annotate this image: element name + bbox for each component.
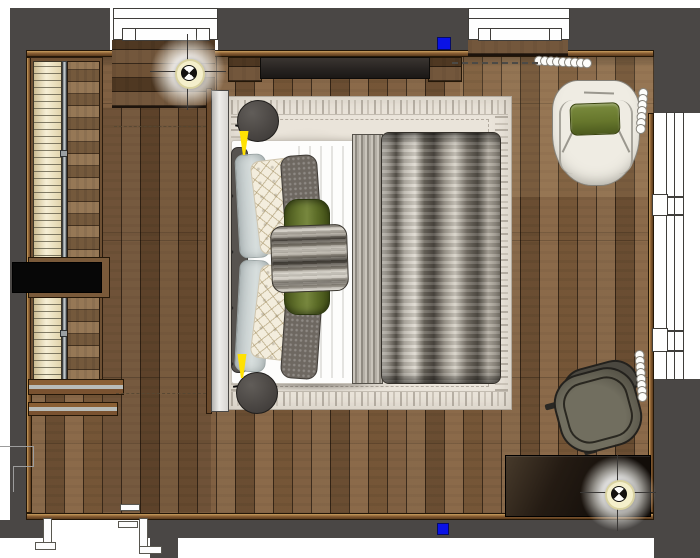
window-right: [666, 112, 684, 380]
console-box: [260, 57, 430, 79]
wall-right-upper: [654, 55, 700, 113]
fur-throw: [381, 132, 501, 384]
window-top-left-mullion: [113, 18, 218, 19]
ceiling-light-1: [156, 40, 220, 104]
dimension-tick: [33, 446, 34, 467]
window-top-right-mullion: [468, 18, 570, 19]
wall-bottom-main: [148, 520, 654, 538]
window-right-glassline: [674, 112, 675, 380]
tv-screen: [12, 262, 102, 293]
door-hinge-plate: [120, 504, 140, 511]
wall-top-mid: [218, 8, 468, 55]
window-right-mullion: [666, 214, 684, 216]
outlet-marker-top: [437, 37, 451, 50]
console-wood-left: [228, 57, 262, 82]
window-right-mullion: [666, 196, 684, 198]
knit-runner: [352, 134, 383, 384]
door-jamb-left-foot: [35, 542, 56, 550]
curtain-loops-right-lower: [636, 352, 645, 400]
wardrobe-door-wood: [67, 61, 100, 383]
dimension-tick: [0, 446, 34, 447]
door-jamb-left: [43, 518, 52, 544]
window-right-mullion: [666, 330, 684, 332]
armchair-cushion: [569, 102, 620, 136]
wall-trim-right: [648, 113, 654, 513]
door-hinge-plate: [118, 521, 138, 528]
window-top-right-sill-block: [478, 28, 491, 41]
dimension-tick: [14, 466, 34, 467]
curtain-rod-dashed-line: [452, 62, 538, 64]
floor-dashed-line: [114, 126, 206, 127]
wall-top-left: [10, 8, 110, 52]
window-top-right-sill-block: [549, 28, 562, 41]
wall-top-right: [568, 8, 700, 55]
ceiling-light-2: [586, 461, 650, 525]
outlet-marker-bottom: [437, 523, 449, 535]
bed: [227, 128, 505, 390]
window-right-sill-block: [652, 194, 668, 216]
floor-dashed-line: [116, 393, 206, 394]
curtain-loops-top: [536, 58, 590, 67]
nightstand-bottom: [236, 372, 278, 414]
window-right-mullion: [666, 350, 684, 352]
door-jamb-right-foot: [139, 546, 162, 554]
closet-bench-rail: [28, 402, 118, 416]
door-jamb-right: [139, 518, 148, 548]
window-sill-wood-right: [468, 40, 568, 56]
dimension-tick: [13, 466, 14, 492]
floor-plan: [0, 0, 700, 558]
window-right-sill-block: [652, 328, 668, 352]
pillow-fur-lumbar: [270, 224, 349, 294]
closet-bench-rail: [28, 379, 124, 395]
curtain-loops-right-upper: [638, 90, 647, 132]
wardrobe-door-light: [33, 61, 62, 383]
wall-right-lower: [654, 379, 700, 558]
window-top-left-sill-block: [122, 28, 136, 41]
console-wood-right: [428, 57, 462, 82]
